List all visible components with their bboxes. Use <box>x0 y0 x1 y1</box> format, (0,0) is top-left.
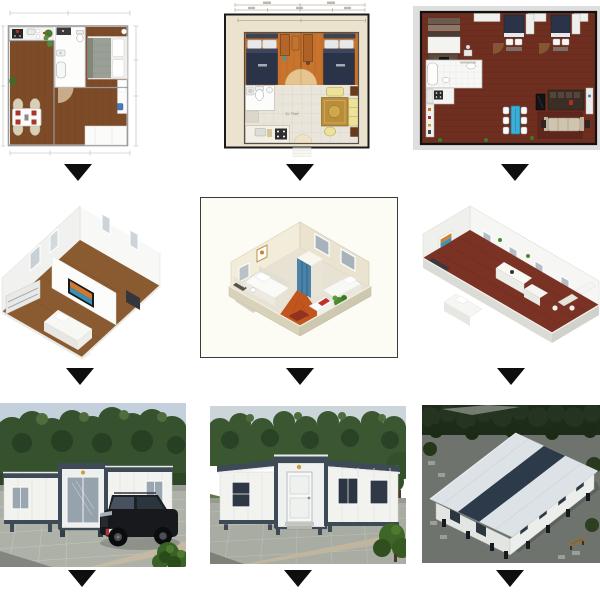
chair <box>570 306 575 311</box>
right-wing <box>324 460 400 526</box>
windshield <box>110 497 134 509</box>
down-arrow-icon <box>64 164 92 181</box>
kitchen <box>426 88 454 104</box>
render-3d-1-image <box>0 198 168 363</box>
window <box>370 480 388 504</box>
bed-area-label <box>336 64 345 67</box>
mattress <box>428 37 460 53</box>
photo-2-image <box>210 406 406 564</box>
wall-plant <box>498 238 502 242</box>
basin <box>467 63 476 69</box>
floor-plan-2d-2: 11.75㎡ <box>200 0 400 162</box>
cooktop <box>510 270 514 274</box>
down-arrow-icon <box>497 368 525 385</box>
wardrobe <box>304 35 313 62</box>
bathroom <box>246 86 275 111</box>
photo-3-image <box>422 405 600 563</box>
wardrobe <box>297 251 323 298</box>
floor-plan-2d-3-image <box>408 0 600 152</box>
down-arrow-icon <box>284 570 312 587</box>
label-blur <box>460 62 476 64</box>
down-arrow-icon <box>68 570 96 587</box>
brand-emblem <box>297 465 301 469</box>
corner-post <box>274 462 278 528</box>
area-label: 11.75㎡ <box>285 110 299 116</box>
wardrobe <box>281 35 290 56</box>
sink <box>255 129 266 137</box>
container-house <box>217 455 400 536</box>
photo-1 <box>0 403 186 567</box>
armchair <box>327 88 344 97</box>
product-collage: 11.75㎡ <box>0 0 600 600</box>
double-bed <box>88 29 128 79</box>
down-arrow-icon <box>286 368 314 385</box>
storage-block <box>85 126 127 145</box>
brand-emblem <box>81 471 85 475</box>
pantry-shelf <box>426 104 434 137</box>
render-3d-3 <box>420 200 600 362</box>
down-arrow-icon <box>496 570 524 587</box>
toilet <box>443 77 450 83</box>
wall-plant <box>526 254 530 258</box>
render-3d-2 <box>200 197 398 358</box>
toilet <box>77 34 83 42</box>
cabinet <box>351 87 359 96</box>
toilet <box>256 90 264 101</box>
down-arrow-icon <box>66 368 94 385</box>
window <box>232 482 250 507</box>
sink <box>27 29 35 35</box>
basin <box>267 87 273 93</box>
step <box>285 522 314 526</box>
living-band: 11.75㎡ <box>245 85 359 144</box>
floor-plan-2d-1 <box>0 0 150 162</box>
photo-1-image <box>0 403 186 567</box>
trees <box>422 405 600 440</box>
left-wing <box>3 472 61 524</box>
cabinet <box>351 128 359 137</box>
bathroom <box>426 60 482 88</box>
render-3d-2-image <box>201 198 397 357</box>
chair <box>553 306 558 311</box>
floor-plan-2d-2-image: 11.75㎡ <box>200 0 400 162</box>
stove <box>434 91 443 100</box>
left-wing <box>217 460 277 524</box>
dimension-labels <box>248 2 351 10</box>
floor-plan-2d-1-image <box>0 0 150 162</box>
shower <box>246 111 259 122</box>
pillow <box>113 39 125 57</box>
window-right <box>324 34 356 39</box>
tub <box>428 63 438 85</box>
bedroom-band <box>245 33 359 85</box>
fridge <box>427 89 433 103</box>
chair <box>325 127 336 136</box>
toilet <box>250 288 256 292</box>
corner-post <box>324 464 328 526</box>
down-arrow-icon <box>286 164 314 181</box>
corner-post <box>58 467 62 529</box>
shelf <box>586 88 593 114</box>
desk <box>292 36 299 50</box>
stove <box>275 129 287 140</box>
window-left <box>246 34 278 39</box>
entry-steps <box>293 148 311 157</box>
kitchen <box>246 126 290 144</box>
render-3d-3-image <box>420 200 600 362</box>
render-3d-1 <box>0 198 168 363</box>
floor-plan-2d-3 <box>408 0 600 152</box>
bed-area-label <box>258 64 267 67</box>
pillow <box>113 60 125 78</box>
sofa <box>349 99 359 127</box>
door-knob <box>308 497 311 500</box>
photo-3 <box>422 405 600 563</box>
center-unit <box>274 455 328 530</box>
sofa <box>548 118 580 131</box>
tub <box>57 62 66 78</box>
lamp <box>121 29 126 34</box>
photo-2 <box>210 406 406 564</box>
dining-set <box>503 106 527 134</box>
down-arrow-icon <box>501 164 529 181</box>
grille <box>101 517 108 527</box>
